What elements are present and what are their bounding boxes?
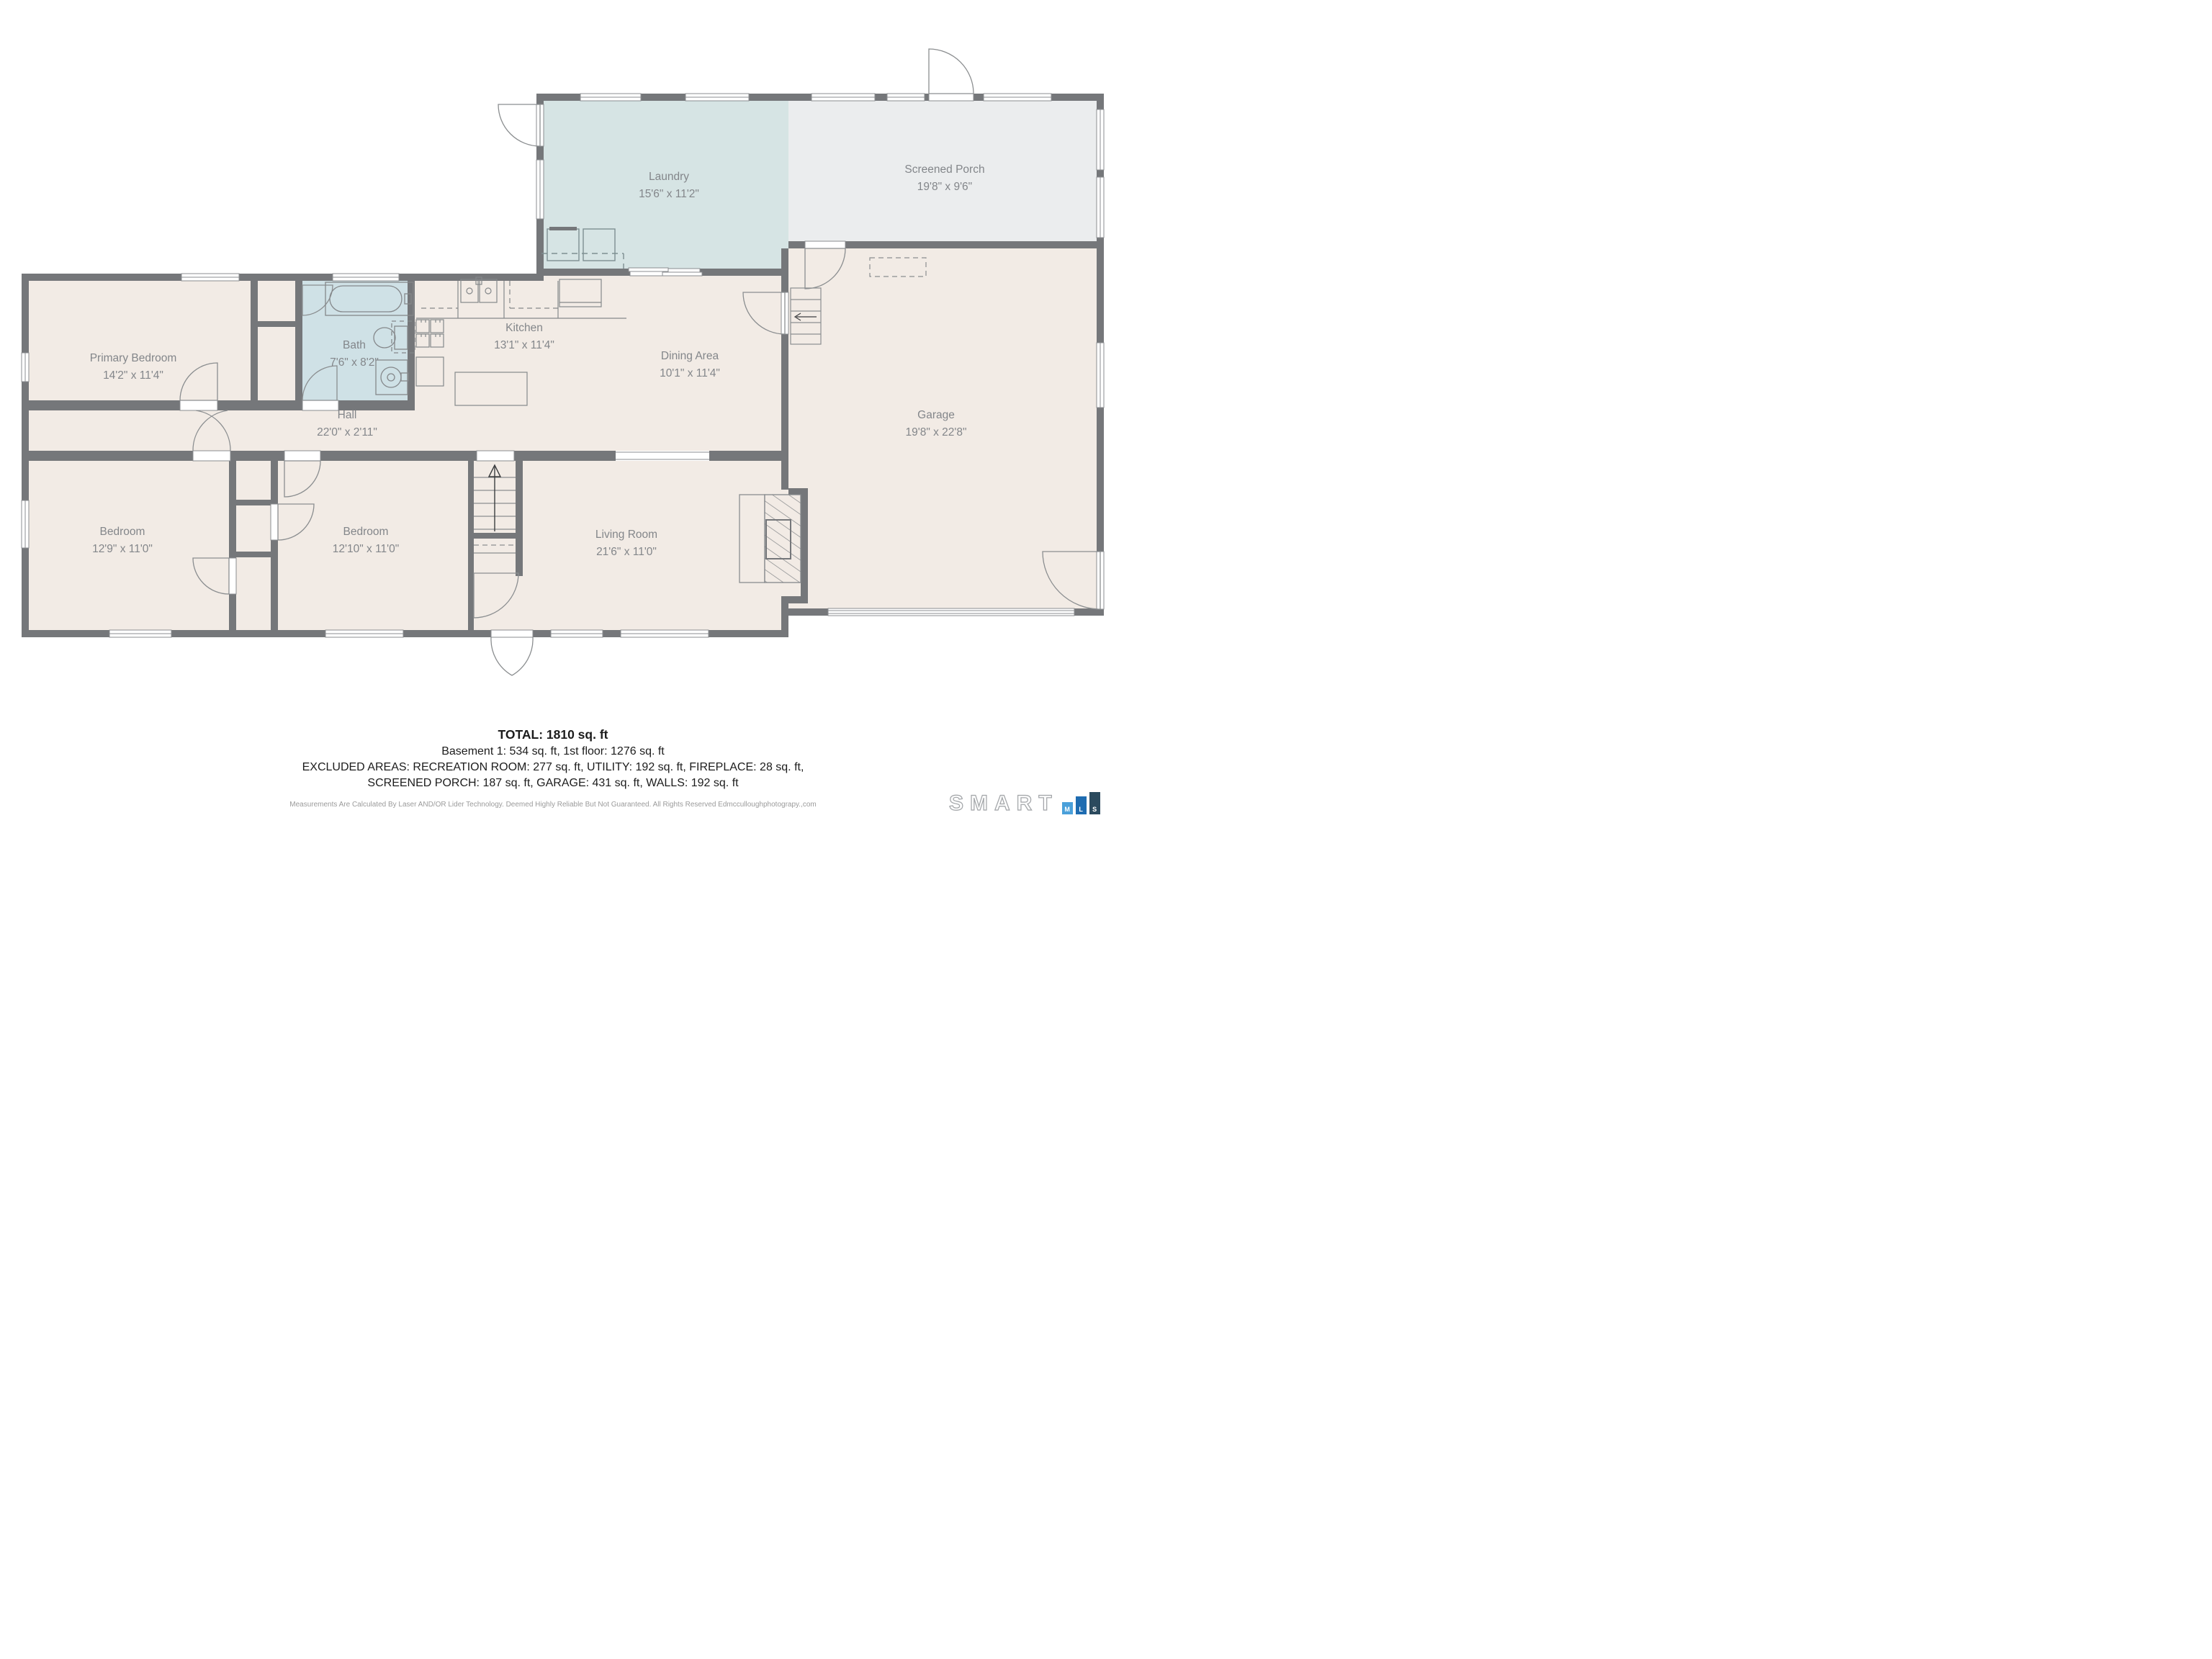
garage-door: [828, 608, 1074, 616]
excluded-areas-2: SCREENED PORCH: 187 sq. ft, GARAGE: 431 …: [0, 775, 1106, 791]
mls-bar-m: M: [1062, 802, 1073, 814]
smartmls-logo: SMART M L S: [949, 792, 1100, 814]
room-name: Garage: [905, 407, 966, 424]
fireplace-hearth: [739, 495, 765, 583]
room-label-laundry: Laundry 15'6" x 11'2": [639, 168, 699, 203]
room-dims: 7'6" x 8'2": [330, 354, 379, 372]
excluded-areas-1: EXCLUDED AREAS: RECREATION ROOM: 277 sq.…: [0, 760, 1106, 775]
mls-bar-s: S: [1089, 792, 1100, 814]
room-name: Living Room: [595, 526, 657, 544]
room-label-bedroom-left: Bedroom 12'9" x 11'0": [92, 523, 153, 558]
floor-plan-page: Laundry 15'6" x 11'2" Screened Porch 19'…: [0, 0, 1106, 829]
room-label-screened-porch: Screened Porch 19'8" x 9'6": [904, 161, 984, 196]
disclaimer-text: Measurements Are Calculated By Laser AND…: [0, 801, 1106, 809]
room-label-bedroom-center: Bedroom 12'10" x 11'0": [333, 523, 399, 558]
room-dims: 15'6" x 11'2": [639, 186, 699, 203]
room-dims: 21'6" x 11'0": [595, 544, 657, 561]
wall-opening: [616, 451, 709, 461]
area-summary: TOTAL: 1810 sq. ft Basement 1: 534 sq. f…: [0, 726, 1106, 791]
room-label-kitchen: Kitchen 13'1" x 11'4": [494, 320, 554, 354]
room-name: Hall: [317, 407, 377, 424]
room-name: Kitchen: [494, 320, 554, 337]
sliding-door: [629, 268, 702, 276]
room-dims: 12'10" x 11'0": [333, 541, 399, 558]
room-label-garage: Garage 19'8" x 22'8": [905, 407, 966, 441]
room-dims: 19'8" x 9'6": [904, 179, 984, 196]
room-name: Bedroom: [92, 523, 153, 541]
room-name: Screened Porch: [904, 161, 984, 179]
mls-bars: M L S: [1062, 792, 1100, 814]
room-name: Primary Bedroom: [90, 350, 177, 367]
room-dims: 22'0" x 2'11": [317, 424, 377, 441]
floor-areas: Basement 1: 534 sq. ft, 1st floor: 1276 …: [0, 744, 1106, 760]
room-label-dining-area: Dining Area 10'1" x 11'4": [660, 348, 720, 382]
room-dims: 14'2" x 11'4": [90, 367, 177, 385]
smart-wordmark: SMART: [949, 793, 1058, 814]
room-name: Laundry: [639, 168, 699, 186]
room-dims: 12'9" x 11'0": [92, 541, 153, 558]
room-name: Bedroom: [333, 523, 399, 541]
room-name: Bath: [330, 337, 379, 354]
room-label-hall: Hall 22'0" x 2'11": [317, 407, 377, 441]
room-dims: 19'8" x 22'8": [905, 424, 966, 441]
fireplace: [739, 495, 801, 583]
mls-bar-l: L: [1076, 796, 1087, 814]
room-label-primary-bedroom: Primary Bedroom 14'2" x 11'4": [90, 350, 177, 385]
room-dims: 10'1" x 11'4": [660, 365, 720, 382]
room-dims: 13'1" x 11'4": [494, 337, 554, 354]
room-label-bath: Bath 7'6" x 8'2": [330, 337, 379, 372]
room-name: Dining Area: [660, 348, 720, 365]
room-label-living-room: Living Room 21'6" x 11'0": [595, 526, 657, 561]
total-area: TOTAL: 1810 sq. ft: [0, 726, 1106, 744]
